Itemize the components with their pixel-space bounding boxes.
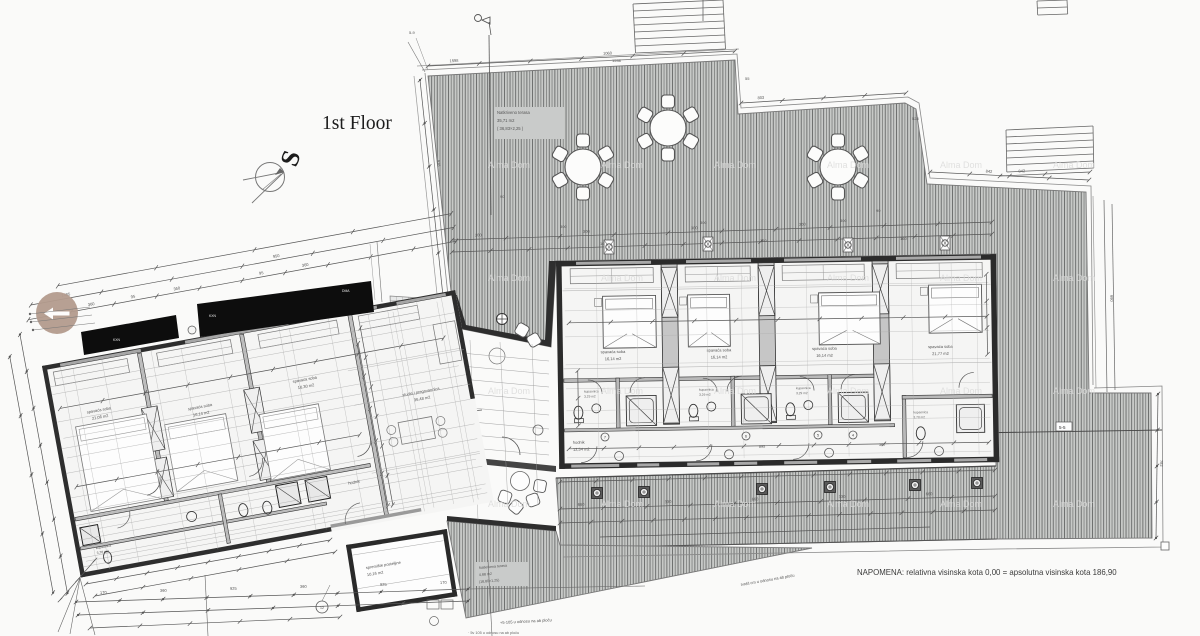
svg-text:16,14 m2: 16,14 m2: [816, 353, 834, 358]
svg-text:925: 925: [230, 586, 238, 591]
svg-text:Alma Dom: Alma Dom: [940, 273, 982, 283]
svg-text:spavaća soba: spavaća soba: [928, 344, 954, 349]
svg-text:Alma Dom: Alma Dom: [827, 386, 869, 396]
svg-text:5-9: 5-9: [409, 30, 416, 35]
svg-text:360: 360: [300, 584, 308, 589]
svg-text:Alma Dom: Alma Dom: [1053, 273, 1095, 283]
svg-text:300: 300: [840, 218, 847, 223]
svg-text:360: 360: [160, 588, 168, 593]
svg-text:KXN: KXN: [113, 338, 121, 342]
svg-text:Alma Dom: Alma Dom: [940, 160, 982, 170]
svg-text:160: 160: [760, 238, 767, 243]
svg-text:160: 160: [900, 236, 907, 241]
svg-text:16,14 m2: 16,14 m2: [605, 356, 623, 361]
svg-text:Natkriveno terasa: Natkriveno terasa: [497, 110, 530, 115]
svg-text:12,54 m2: 12,54 m2: [573, 446, 591, 451]
svg-text:Alma Dom: Alma Dom: [714, 499, 756, 509]
svg-text:528: 528: [912, 116, 919, 121]
svg-text:300: 300: [691, 225, 699, 230]
svg-text:Alma Dom: Alma Dom: [714, 273, 756, 283]
svg-text:3,29 m2: 3,29 m2: [584, 394, 596, 398]
svg-text:3,29 m2: 3,29 m2: [699, 393, 711, 397]
svg-text:kupaonica: kupaonica: [699, 388, 714, 392]
svg-text:Alma Dom: Alma Dom: [940, 499, 982, 509]
svg-text:Alma Dom: Alma Dom: [714, 160, 756, 170]
svg-text:spavaća soba: spavaća soba: [812, 346, 838, 351]
svg-text:Alma Dom: Alma Dom: [714, 386, 756, 396]
svg-text:300: 300: [700, 220, 707, 225]
svg-text:660: 660: [578, 502, 586, 507]
svg-text:kupaonica: kupaonica: [584, 389, 599, 393]
svg-text:DMA: DMA: [342, 289, 350, 293]
svg-text:Alma Dom: Alma Dom: [601, 273, 643, 283]
svg-text:Alma Dom: Alma Dom: [827, 273, 869, 283]
svg-text:hodnik: hodnik: [573, 440, 585, 445]
svg-text:spavaća soba: spavaća soba: [601, 349, 627, 354]
svg-text:300: 300: [799, 222, 807, 227]
svg-text:Alma Dom: Alma Dom: [488, 499, 530, 509]
svg-text:1060: 1060: [603, 50, 613, 55]
svg-text:895: 895: [759, 445, 765, 449]
svg-text:KXN: KXN: [209, 314, 217, 318]
svg-text:1598: 1598: [612, 58, 622, 63]
svg-text:Alma Dom: Alma Dom: [601, 499, 643, 509]
svg-text:170: 170: [100, 590, 108, 595]
svg-text:300: 300: [583, 229, 591, 234]
svg-text:35,71 m2: 35,71 m2: [497, 118, 515, 123]
svg-text:NAPOMENA: relativna visinska k: NAPOMENA: relativna visinska kota 0,00 =…: [857, 568, 1117, 577]
svg-text:16,14 m2: 16,14 m2: [711, 354, 729, 359]
svg-text:330: 330: [665, 499, 673, 504]
svg-text:Alma Dom: Alma Dom: [488, 160, 530, 170]
svg-text:660: 660: [926, 491, 934, 496]
svg-text:Alma Dom: Alma Dom: [1053, 386, 1095, 396]
svg-text:Alma Dom: Alma Dom: [1053, 499, 1095, 509]
svg-text:842: 842: [986, 169, 994, 174]
svg-text:Alma Dom: Alma Dom: [601, 386, 643, 396]
svg-text:170: 170: [440, 580, 448, 585]
svg-text:12: 12: [320, 606, 324, 610]
svg-text:· 5v 105 u odnosu na ab ploču: · 5v 105 u odnosu na ab ploču: [468, 631, 519, 635]
svg-text:3,29 m2: 3,29 m2: [796, 391, 808, 395]
svg-text:3,78 m2: 3,78 m2: [913, 415, 925, 419]
svg-text:300: 300: [475, 232, 483, 237]
svg-text:90: 90: [876, 208, 881, 213]
svg-text:1598: 1598: [449, 58, 459, 63]
svg-text:Alma Dom: Alma Dom: [827, 160, 869, 170]
svg-text:803: 803: [757, 95, 765, 100]
svg-text:Alma Dom: Alma Dom: [940, 386, 982, 396]
svg-text:Alma Dom: Alma Dom: [488, 386, 530, 396]
svg-text:5-5: 5-5: [1059, 425, 1066, 430]
svg-text:kupaonica: kupaonica: [796, 386, 811, 390]
svg-text:Alma Dom: Alma Dom: [827, 499, 869, 509]
svg-text:925: 925: [380, 582, 388, 587]
svg-text:842: 842: [1018, 168, 1026, 173]
svg-text:300: 300: [560, 224, 567, 229]
svg-text:kupaonica: kupaonica: [913, 410, 928, 414]
svg-text:21,77 m2: 21,77 m2: [932, 351, 950, 356]
svg-text:1st Floor: 1st Floor: [322, 113, 392, 134]
svg-text:Alma Dom: Alma Dom: [601, 160, 643, 170]
svg-text:spavaća soba: spavaća soba: [707, 347, 733, 352]
svg-text:782: 782: [1159, 460, 1164, 468]
svg-text:Alma Dom: Alma Dom: [488, 273, 530, 283]
svg-text:90: 90: [500, 194, 505, 199]
svg-text:( 36,83×2,25 ): ( 36,83×2,25 ): [497, 126, 524, 131]
svg-text:Alma Dom: Alma Dom: [1053, 160, 1095, 170]
svg-text:55: 55: [745, 76, 750, 81]
